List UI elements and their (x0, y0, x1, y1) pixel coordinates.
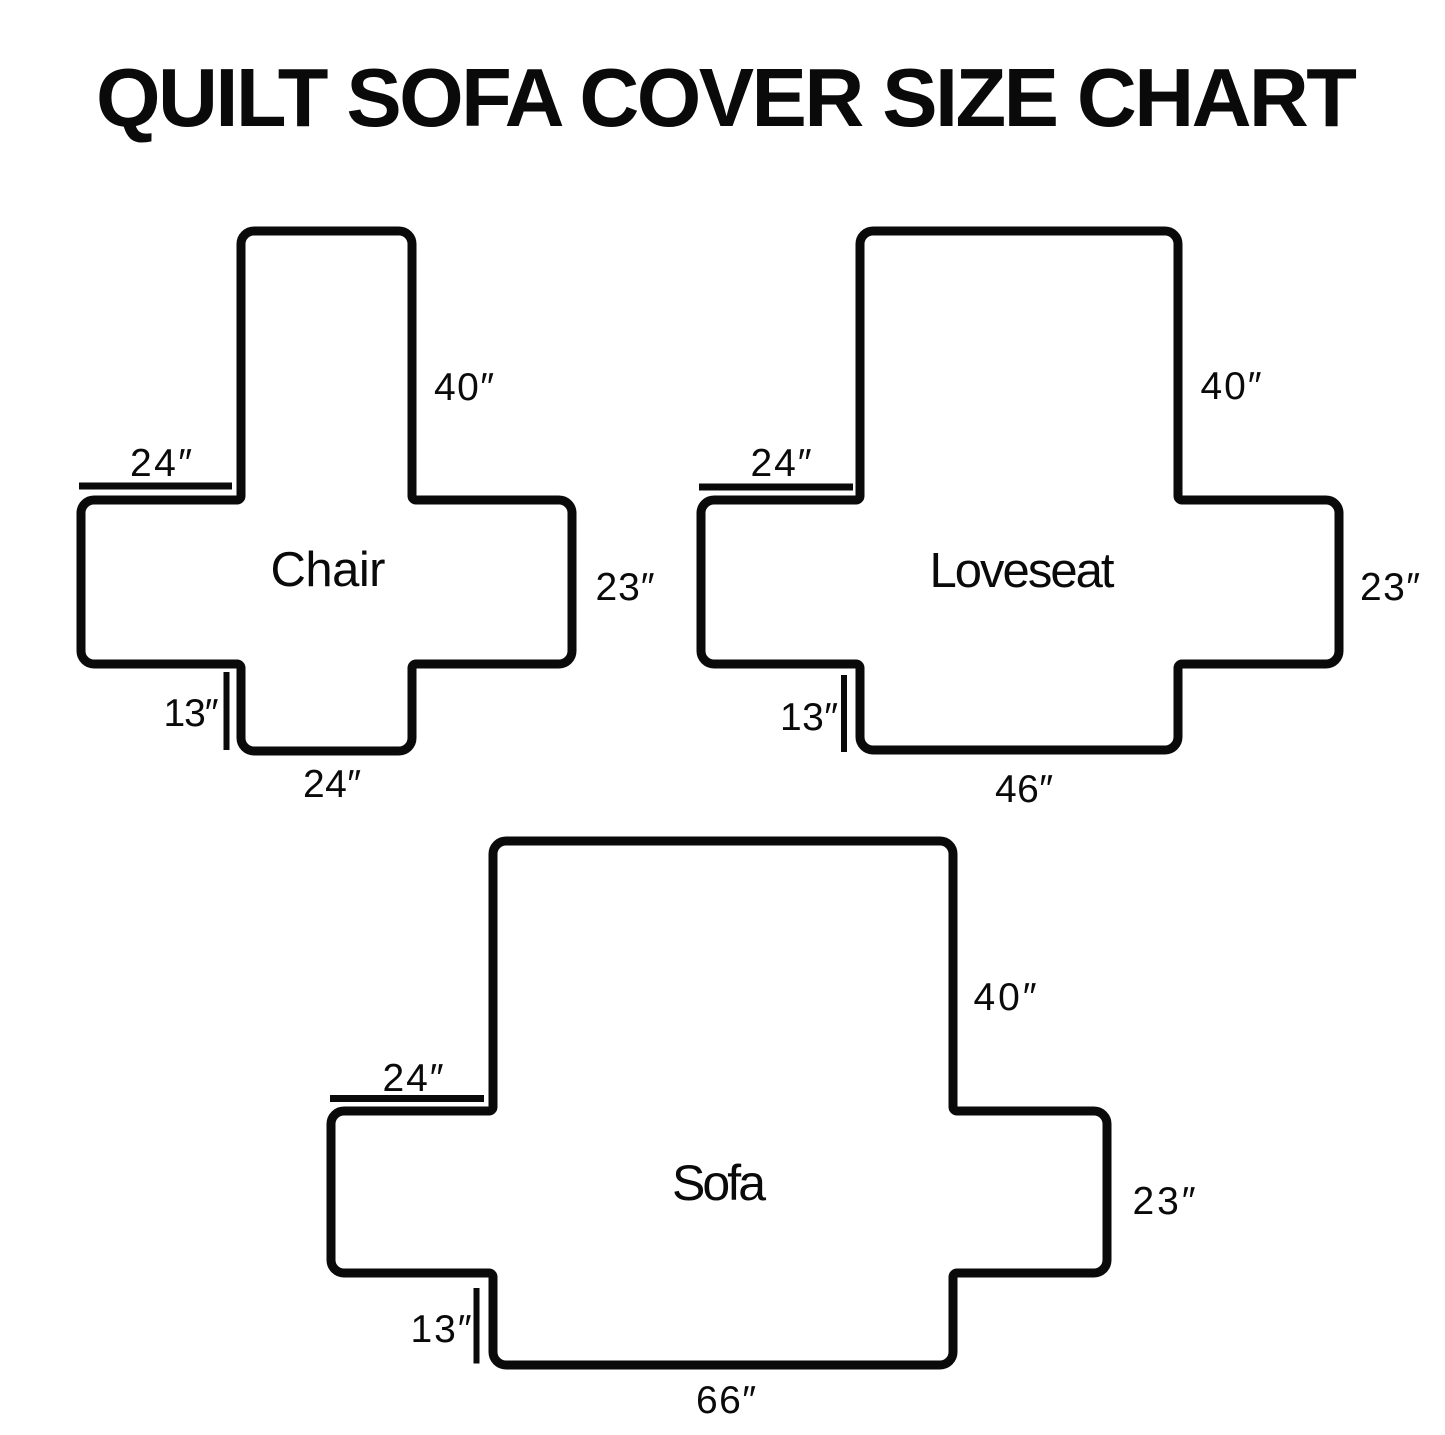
svg-text:24″: 24″ (383, 1057, 444, 1100)
svg-text:24″: 24″ (130, 442, 192, 485)
svg-text:QUILT SOFA COVER SIZE CHART: QUILT SOFA COVER SIZE CHART (96, 51, 1357, 144)
svg-text:13″: 13″ (780, 696, 838, 739)
svg-text:Chair: Chair (271, 543, 386, 597)
svg-text:40″: 40″ (974, 976, 1037, 1019)
svg-text:24″: 24″ (303, 763, 361, 806)
svg-text:40″: 40″ (1201, 365, 1262, 408)
svg-text:13″: 13″ (411, 1308, 472, 1351)
svg-text:24″: 24″ (751, 442, 812, 485)
svg-text:40″: 40″ (434, 366, 494, 409)
svg-text:Sofa: Sofa (672, 1155, 766, 1211)
svg-text:66″: 66″ (696, 1379, 756, 1422)
svg-text:23″: 23″ (1133, 1180, 1196, 1223)
svg-text:23″: 23″ (1360, 566, 1420, 609)
svg-text:Loveseat: Loveseat (930, 544, 1115, 598)
svg-text:46″: 46″ (995, 768, 1053, 811)
svg-text:23″: 23″ (596, 566, 655, 609)
svg-text:13″: 13″ (164, 692, 219, 735)
